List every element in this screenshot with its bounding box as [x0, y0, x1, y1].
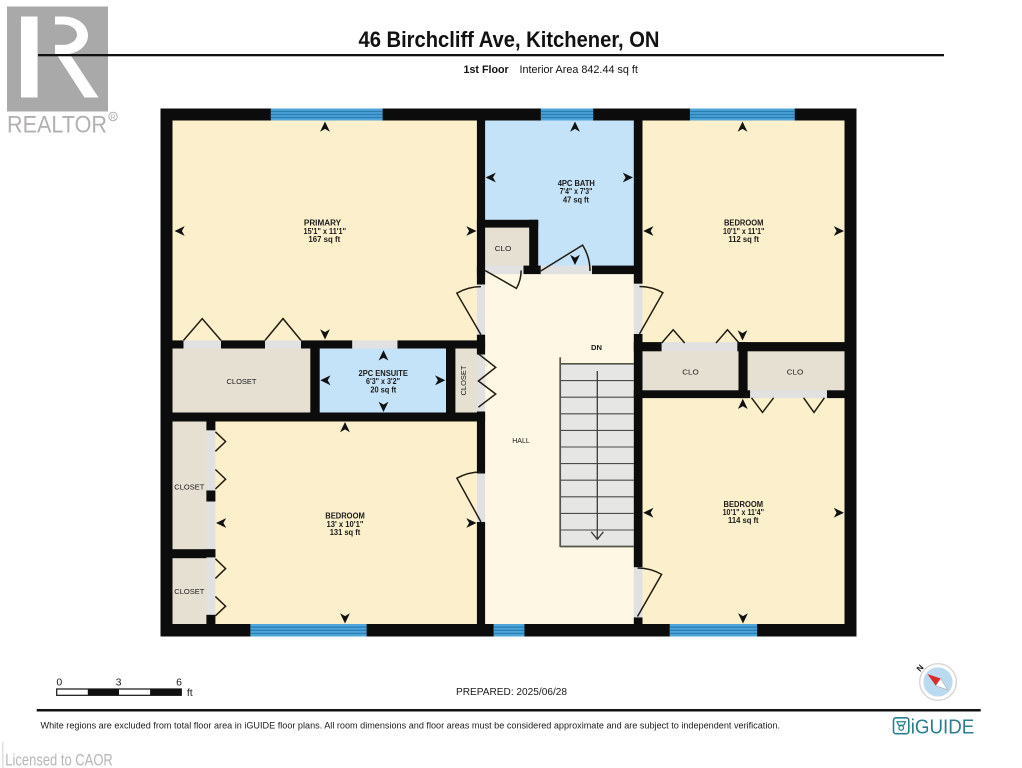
svg-text:HALL: HALL — [512, 436, 530, 445]
svg-text:CLOSET: CLOSET — [227, 377, 257, 386]
svg-text:0: 0 — [56, 677, 62, 689]
svg-text:20 sq ft: 20 sq ft — [370, 385, 396, 394]
svg-text:112 sq ft: 112 sq ft — [728, 235, 759, 244]
svg-text:6: 6 — [176, 677, 182, 689]
svg-text:167 sq ft: 167 sq ft — [308, 235, 340, 244]
svg-text:White regions are excluded fro: White regions are excluded from total fl… — [41, 720, 781, 731]
svg-text:1st Floor: 1st Floor — [464, 64, 510, 76]
svg-text:PREPARED: 2025/06/28: PREPARED: 2025/06/28 — [456, 687, 567, 698]
svg-text:DN: DN — [591, 343, 602, 352]
svg-text:Interior Area 842.44 sq ft: Interior Area 842.44 sq ft — [520, 64, 639, 76]
svg-text:131 sq ft: 131 sq ft — [330, 528, 361, 537]
svg-text:CLOSET: CLOSET — [459, 365, 468, 395]
svg-text:REALTOR: REALTOR — [7, 112, 107, 139]
svg-text:114 sq ft: 114 sq ft — [728, 516, 759, 525]
svg-text:CLO: CLO — [495, 244, 512, 253]
svg-text:CLOSET: CLOSET — [174, 482, 204, 491]
svg-text:R: R — [110, 113, 116, 122]
svg-text:iGUIDE: iGUIDE — [911, 716, 975, 739]
svg-text:ft: ft — [187, 687, 193, 699]
svg-text:3: 3 — [116, 677, 122, 689]
svg-text:46 Birchcliff Ave, Kitchener,: 46 Birchcliff Ave, Kitchener, ON — [359, 27, 660, 52]
svg-text:CLO: CLO — [787, 368, 804, 377]
svg-text:CLOSET: CLOSET — [174, 587, 204, 596]
svg-text:47 sq ft: 47 sq ft — [563, 195, 589, 204]
svg-text:Licensed to CAOR: Licensed to CAOR — [5, 752, 113, 768]
svg-text:CLO: CLO — [682, 368, 699, 377]
